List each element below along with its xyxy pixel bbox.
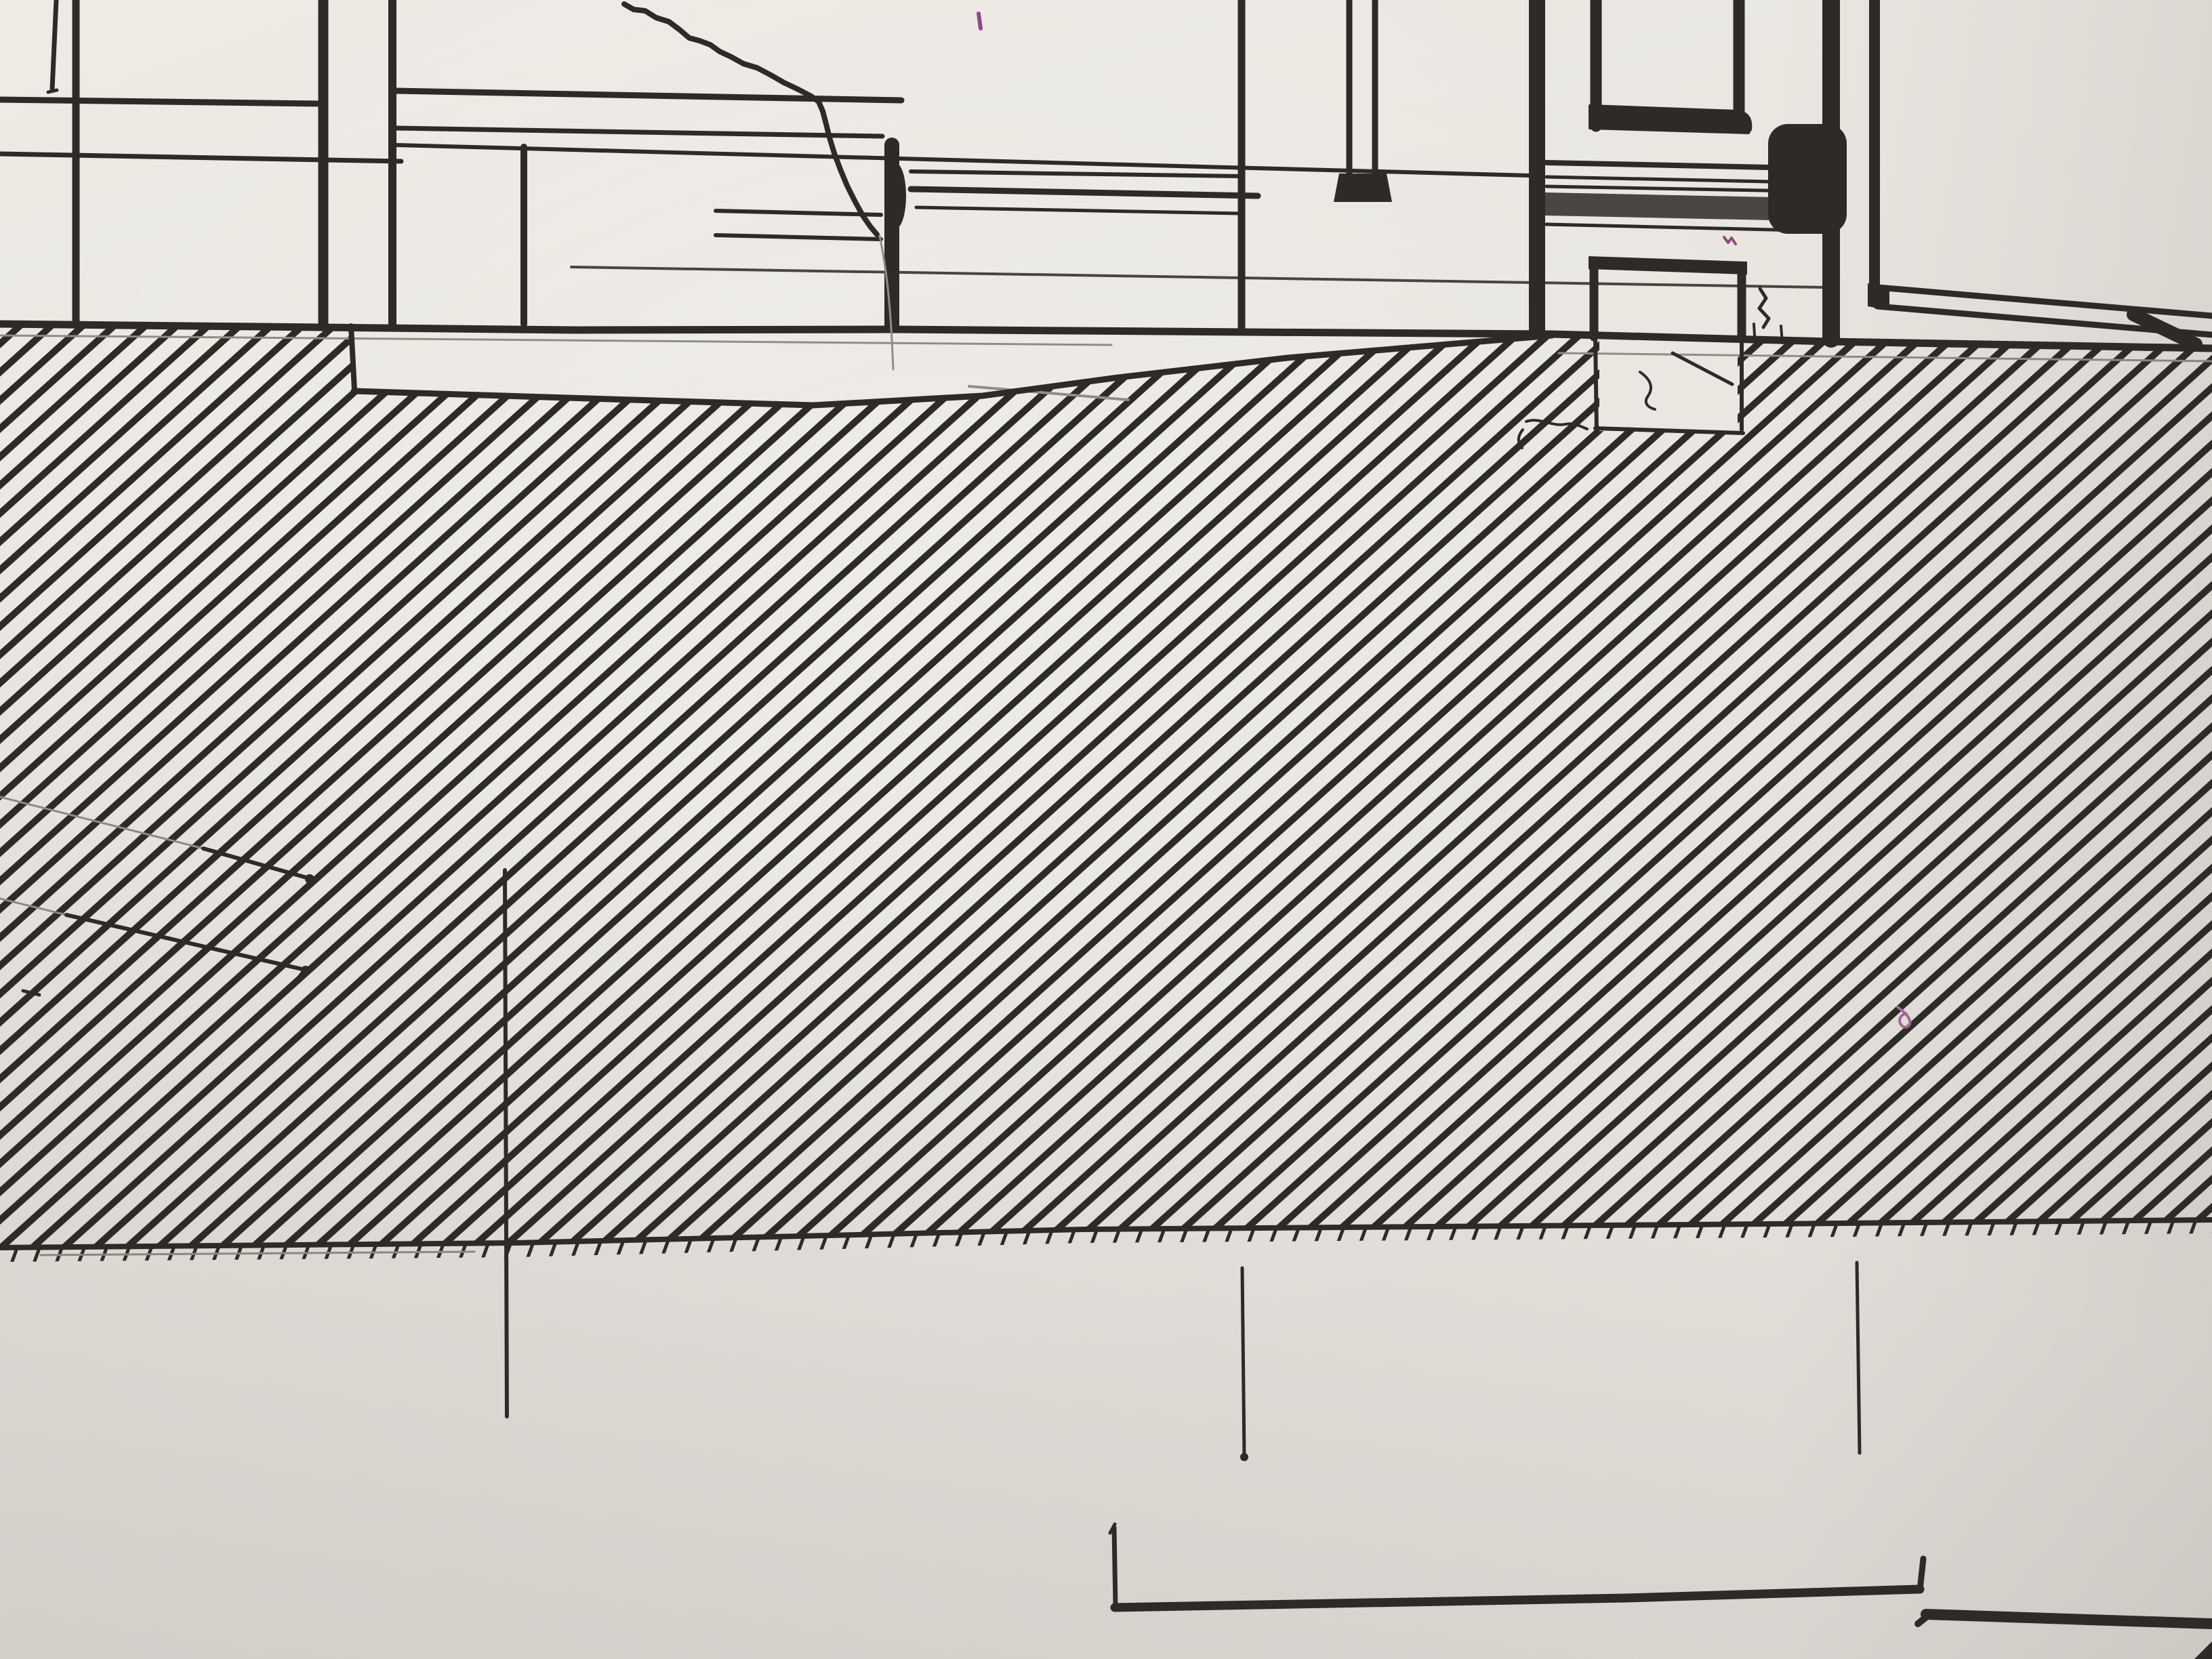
grade-step-edge <box>351 326 354 390</box>
areaway-white-pocket <box>1599 274 1738 431</box>
wall-line-far-left-short <box>52 0 56 89</box>
hanger-post-foot <box>1334 173 1392 202</box>
ledger-line-b <box>911 189 1258 196</box>
reference-tick-2-end-blob <box>1240 1453 1248 1461</box>
crack-ink-blob <box>886 163 906 228</box>
upper-window-sill-band <box>1590 106 1750 133</box>
earth-hatch-region <box>0 327 2212 1248</box>
areaway-left-jamb-lower <box>1595 337 1597 431</box>
magenta-tick-top <box>979 14 981 28</box>
drawing-canvas <box>0 0 2212 1659</box>
ledger-line-c <box>916 207 1240 213</box>
heavy-segment-bottom-right <box>1926 1614 2212 1624</box>
reference-tick-1 <box>505 870 507 1416</box>
beam-dark-band <box>1545 192 1805 221</box>
header-line-left-upper <box>0 100 319 104</box>
crack-line-main <box>624 4 877 234</box>
dimension-bracket-right-hook <box>1920 1559 1923 1590</box>
reference-tick-2 <box>1242 1268 1244 1457</box>
leader-line-1-end-blob <box>305 874 314 884</box>
dimension-bracket-left-riser <box>1114 1528 1115 1606</box>
magenta-mark-right <box>1724 237 1736 244</box>
header-line-left-lower <box>0 154 401 161</box>
sloped-beam-left-joint <box>1868 283 1889 310</box>
beam-line-top <box>1547 163 1803 168</box>
ledger-line-a <box>911 171 1240 176</box>
reference-tick-3 <box>1857 1263 1860 1453</box>
heavy-segment-start-chamfer <box>1918 1613 1931 1624</box>
areaway-top-band <box>1589 256 1747 274</box>
sill-line-short-b <box>716 235 881 239</box>
beam-bearing-plate <box>1788 144 1827 214</box>
crack-line-right <box>1759 289 1769 327</box>
beam-line-mid-a <box>1547 177 1800 182</box>
photo-of-architectural-section-drawing <box>0 0 2212 1659</box>
beam-line-bottom <box>1547 224 1801 230</box>
corner-dark-wedge <box>2194 1641 2212 1659</box>
grade-tick-right-a <box>1754 324 1755 347</box>
beam-line-mid-b <box>1547 186 1800 191</box>
sill-line-short-a <box>716 211 881 215</box>
dimension-bracket-bar <box>1115 1589 1920 1607</box>
grade-tick-right-b <box>1781 326 1782 343</box>
wall-line-far-left-foot <box>48 90 57 92</box>
floor-line-2 <box>396 128 882 136</box>
floor-line-1 <box>396 91 901 100</box>
